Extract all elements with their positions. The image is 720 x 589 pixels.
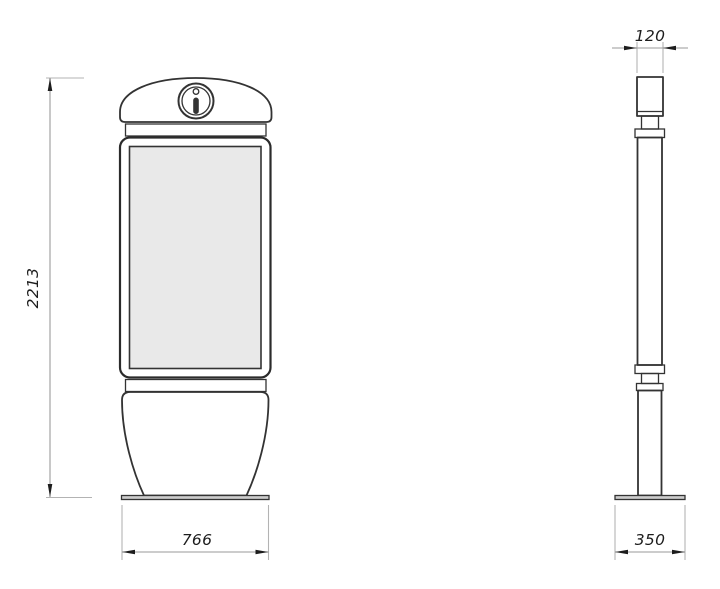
technical-drawing-canvas: 2213 766 120 350 xyxy=(0,0,720,589)
front-base-plate xyxy=(122,496,270,500)
front-bottom-band xyxy=(126,380,267,392)
top-depth-arrow-right xyxy=(663,46,676,51)
height-dimension-label: 2213 xyxy=(24,268,42,309)
height-arrow-up xyxy=(48,78,53,91)
side-cap xyxy=(637,77,663,116)
side-top-neck xyxy=(642,116,659,129)
dimension-overall-height: 2213 xyxy=(24,78,92,498)
screen-panel xyxy=(130,147,262,369)
dimension-base-width: 766 xyxy=(122,505,269,560)
front-view xyxy=(120,78,272,500)
info-icon xyxy=(179,84,214,119)
side-view xyxy=(615,77,685,500)
info-icon-dot xyxy=(193,89,199,95)
dimension-top-depth: 120 xyxy=(612,27,688,73)
height-arrow-down xyxy=(48,484,53,497)
front-base-bell xyxy=(122,392,269,496)
info-icon-stem xyxy=(193,98,199,115)
base-depth-dimension-label: 350 xyxy=(635,531,666,549)
front-top-band xyxy=(126,124,267,136)
side-post xyxy=(638,391,662,496)
side-base-plate xyxy=(615,496,685,500)
width-arrow-right xyxy=(256,550,269,555)
base-depth-arrow-right xyxy=(672,550,685,555)
base-depth-arrow-left xyxy=(615,550,628,555)
side-low-collar xyxy=(637,384,664,391)
side-mid-collar xyxy=(635,365,665,374)
top-depth-dimension-label: 120 xyxy=(635,27,666,45)
side-body xyxy=(638,138,663,366)
width-arrow-left xyxy=(122,550,135,555)
dimension-base-depth: 350 xyxy=(615,505,685,560)
side-top-collar xyxy=(635,129,665,138)
width-dimension-label: 766 xyxy=(182,531,213,549)
side-bottom-neck xyxy=(642,374,659,384)
kiosk-dimension-drawing: 2213 766 120 350 xyxy=(0,0,720,589)
top-depth-arrow-left xyxy=(624,46,637,51)
